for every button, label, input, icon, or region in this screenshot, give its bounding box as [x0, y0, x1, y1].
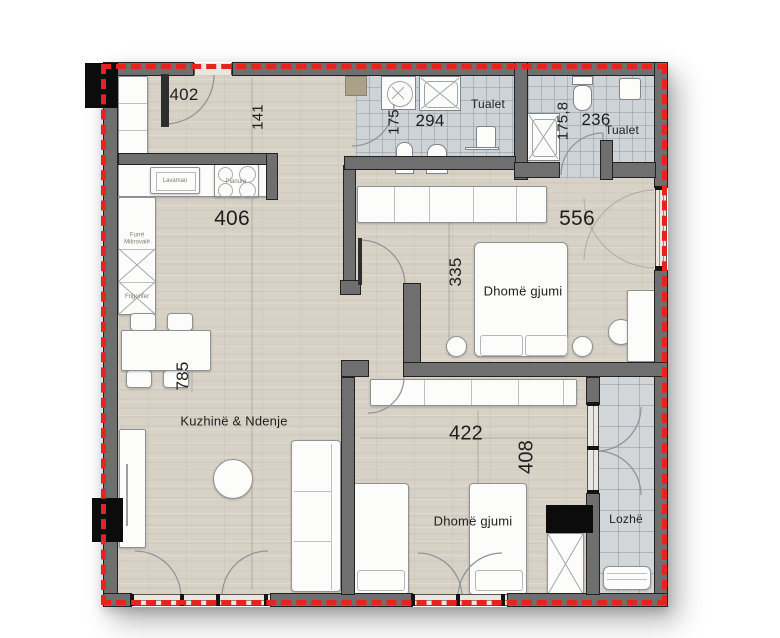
- dim-bedroom-second-width: 422: [449, 423, 483, 446]
- appliance-label-fridge: Frigorifer: [125, 294, 149, 300]
- floor-plan-canvas: 402 141 175 294 Tualet 175,8 236 Tualet …: [0, 0, 780, 638]
- dim-bedroom-main-width: 556: [559, 207, 595, 231]
- dim-hall-width: 402: [170, 85, 199, 105]
- dim-hall-height: 141: [250, 104, 267, 130]
- room-label-bath-left: Tualet: [471, 97, 505, 111]
- dim-bedroom-second-height: 408: [516, 440, 539, 474]
- appliance-label-cooktop: Pianure: [226, 179, 247, 185]
- appliance-label-sink: Lavaman: [163, 178, 188, 184]
- room-label-living: Kuzhinë & Ndenje: [180, 414, 287, 429]
- dim-living-width: 406: [214, 207, 250, 231]
- room-label-bedroom-second: Dhomë gjumi: [434, 514, 513, 529]
- dim-living-height: 785: [173, 362, 193, 391]
- room-label-loggia: Lozhë: [609, 512, 643, 526]
- dim-bedroom-main-height: 335: [446, 258, 466, 287]
- boundary-dashed-line: [101, 64, 667, 605]
- dim-bath-left-width: 294: [416, 111, 445, 131]
- room-label-bedroom-main: Dhomë gjumi: [484, 284, 563, 299]
- appliance-label-microwave: Furrë Mikrovalë: [120, 232, 154, 245]
- room-label-bath-right: Tualet: [605, 123, 639, 137]
- dim-bath-left-height: 175: [386, 109, 403, 135]
- dim-bath-right-height: 175,8: [555, 102, 572, 141]
